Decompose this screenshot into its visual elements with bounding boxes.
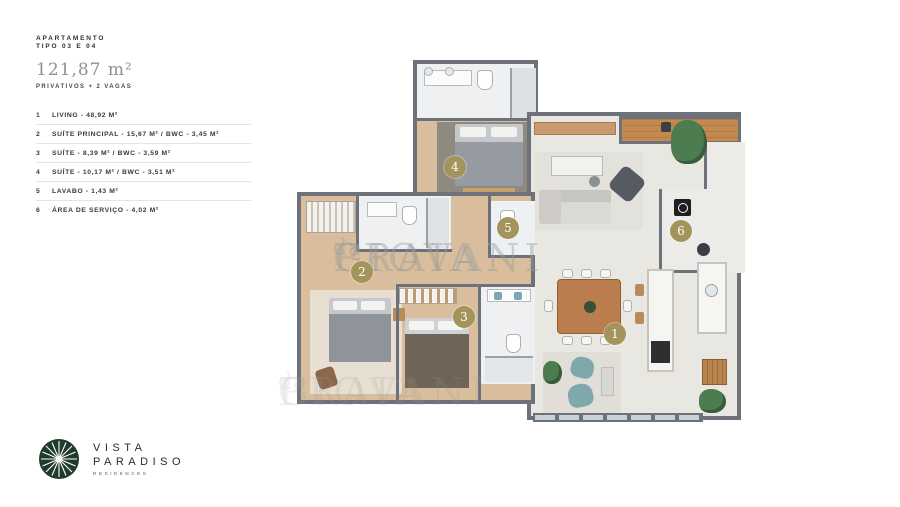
legend-num: 5 [36,188,43,195]
apartment-subtitle: PRIVATIVOS + 2 VAGAS [36,84,251,90]
legend-label: LIVING - 48,92 M² [52,112,118,119]
terrace-windows [533,413,703,422]
suite-4-bed [455,124,523,186]
suite-4-block [413,60,538,198]
dining-chair [562,336,573,345]
room-marker-area-servico: 6 [670,220,692,242]
brochure-page: APARTAMENTO TIPO 03 E 04 121,87 m² PRIVA… [0,0,900,507]
cooktop-icon [651,341,670,363]
legend-label: SUÍTE - 8,39 M² / BWC - 3,59 M² [52,150,171,157]
stool [635,312,644,324]
sofa-chaise [539,190,561,224]
grill-icon [661,122,671,132]
logo-subtitle: RESIDENCES [93,472,185,477]
sink-icon [424,67,433,76]
desk [551,156,603,176]
dining-chair [544,300,553,312]
legend-num: 2 [36,131,43,138]
legend-item-area-servico: 6 ÁREA DE SERVIÇO - 4,02 M² [36,200,251,219]
laundry-basket-icon [697,243,710,256]
closet-shelves [306,201,356,233]
legend-label: SUÍTE PRINCIPAL - 15,67 M² / BWC - 3,45 … [52,131,219,138]
vista-paradiso-flower-icon [36,436,82,482]
dining-chair [581,269,592,278]
room-marker-living: 1 [604,323,626,345]
desk-chair [589,176,600,187]
kitchen-sink-icon [705,284,718,297]
wall [659,189,662,273]
legend-item-living: 1 LIVING - 48,92 M² [36,106,251,124]
suite-3-wardrobe [399,288,457,304]
logo-name-line1: VISTA [93,441,185,455]
legend-num: 4 [36,169,43,176]
dining-chair [600,269,611,278]
legend-label: LAVABO - 1,43 M² [52,188,118,195]
toilet-icon [402,206,417,225]
room-marker-suite-principal: 2 [351,261,373,283]
balcony-plant [671,120,707,164]
brand-logo: VISTA PARADISO RESIDENCES [36,436,185,482]
stool [635,284,644,296]
legend-num: 6 [36,207,43,214]
info-panel: APARTAMENTO TIPO 03 E 04 121,87 m² PRIVA… [36,35,251,219]
living-kitchen-block [527,112,741,420]
room-marker-lavabo: 5 [497,217,519,239]
shower-3 [485,356,533,382]
legend-item-suite-4: 4 SUÍTE - 10,17 M² / BWC - 3,51 M² [36,162,251,181]
living-sideboard [534,122,616,135]
legend-label: SUÍTE - 10,17 M² / BWC - 3,51 M² [52,169,175,176]
bathroom-2-counter [367,202,397,217]
legend-num: 1 [36,112,43,119]
suite-2-bed [329,298,391,362]
dining-chair [562,269,573,278]
toilet-icon [477,70,493,90]
bathroom-3-counter [487,289,531,302]
legend-num: 3 [36,150,43,157]
apartment-label-line2: TIPO 03 E 04 [36,43,251,51]
shower-4 [510,68,536,118]
dining-chair [581,336,592,345]
apartment-area: 121,87 m² [36,60,251,80]
room-marker-suite-4: 4 [444,156,466,178]
toilet-icon [506,334,521,353]
legend-item-suite-3: 3 SUÍTE - 8,39 M² / BWC - 3,59 M² [36,143,251,162]
washing-machine-icon [674,199,691,216]
dining-chair [623,300,632,312]
logo-name-line2: PARADISO [93,455,185,469]
wall [396,284,535,287]
room-legend: 1 LIVING - 48,92 M² 2 SUÍTE PRINCIPAL - … [36,106,251,219]
side-table [601,367,614,396]
floor-plan: GIOVANI da PRAIA GIOVANI da PRAIA [293,58,753,438]
legend-item-lavabo: 5 LAVABO - 1,43 M² [36,181,251,200]
legend-label: ÁREA DE SERVIÇO - 4,02 M² [52,207,159,214]
legend-item-suite-principal: 2 SUÍTE PRINCIPAL - 15,67 M² / BWC - 3,4… [36,124,251,143]
kitchen-plant [699,389,726,413]
living-plant [543,361,562,384]
logo-text: VISTA PARADISO RESIDENCES [93,441,185,477]
room-marker-suite-3: 3 [453,306,475,328]
apartment-label-line1: APARTAMENTO [36,35,251,43]
kitchen-counter [697,262,727,334]
sink-icon [445,67,454,76]
nightstand [393,308,405,321]
kitchen-cabinet [702,359,727,385]
